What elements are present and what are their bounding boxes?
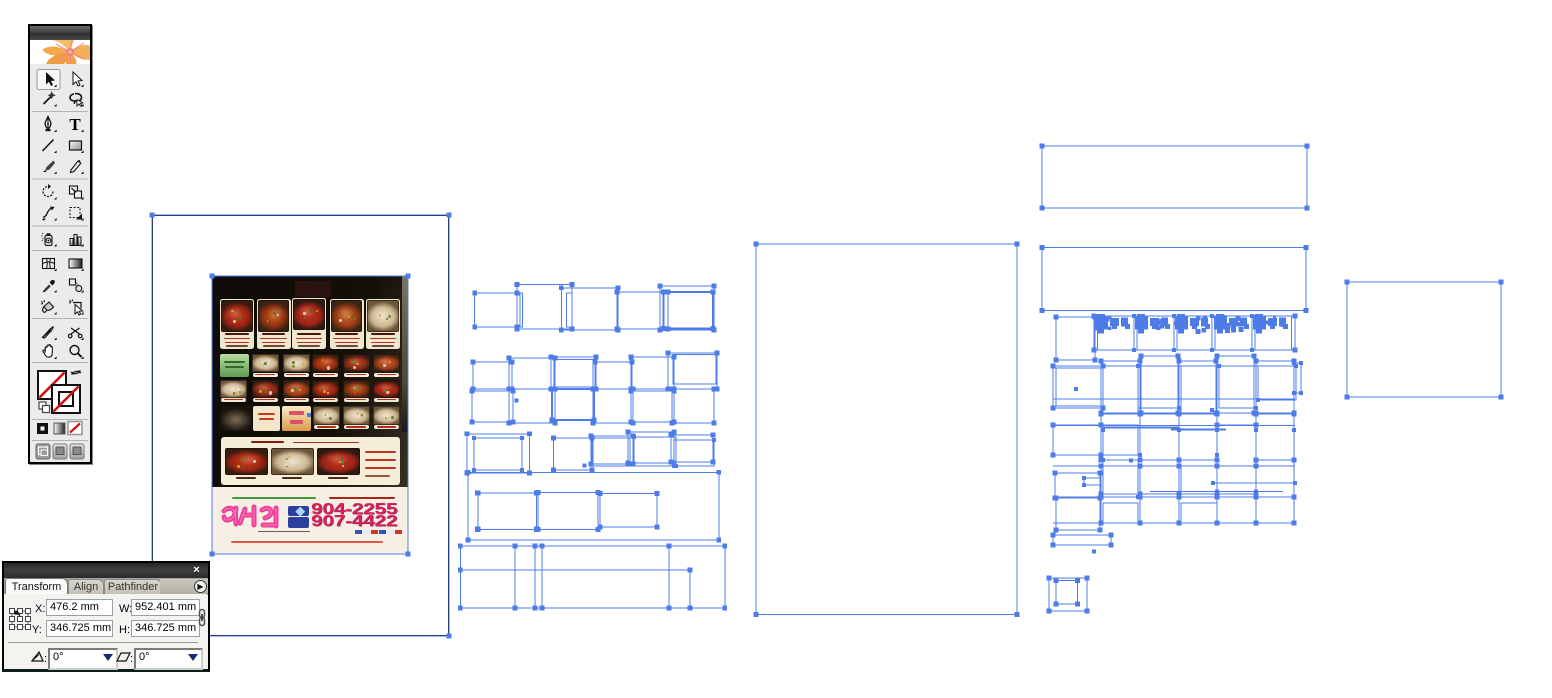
svg-text:T: T [69, 115, 81, 134]
